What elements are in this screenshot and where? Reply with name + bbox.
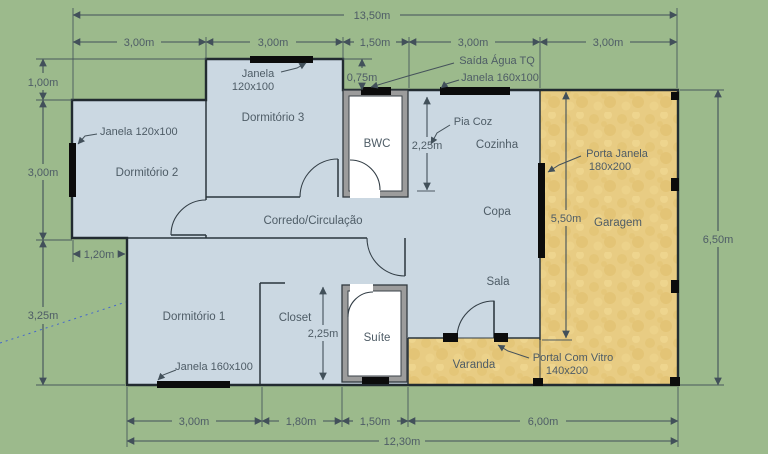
dim-top-5: 3,00m: [593, 37, 624, 49]
label-janela-dorm3-line1: Janela: [242, 68, 275, 80]
dim-left-mid: 3,00m: [28, 167, 59, 179]
portal-frame-right: [494, 333, 508, 342]
label-portal-line1: Portal Com Vitro: [533, 352, 614, 364]
dim-top-4: 3,00m: [458, 37, 489, 49]
label-janela-cozinha: Janela 160x100: [461, 72, 539, 84]
dim-left-top: 1,00m: [28, 77, 59, 89]
label-janela-dorm1: Janela 160x100: [175, 361, 253, 373]
dorm3-window: [250, 56, 313, 63]
room-dormitorio2: Dormitório 2: [116, 167, 179, 179]
dim-bottom-4: 6,00m: [528, 416, 559, 428]
room-bwc: BWC: [364, 138, 391, 150]
dim-bottom-2: 1,80m: [286, 416, 317, 428]
room-corredor: Corredo/Circulação: [263, 215, 362, 227]
floor-plan-canvas: 13,50m 3,00m 3,00m 1,50m 3,00m 3,00m 1,0…: [0, 0, 768, 454]
room-garagem: Garagem: [594, 217, 642, 229]
porta-janela: [538, 163, 545, 258]
dim-top-1: 3,00m: [124, 37, 155, 49]
label-saida-agua: Saída Água TQ: [459, 54, 535, 67]
dim-garagem-depth: 5,50m: [551, 213, 582, 225]
dim-closet-depth: 2,25m: [308, 328, 339, 340]
label-janela-dorm2: Janela 120x100: [100, 126, 178, 138]
dim-top-3: 1,50m: [360, 37, 391, 49]
dim-left-bot: 3,25m: [28, 310, 59, 322]
dorm2-window: [69, 143, 76, 197]
dim-bwc-offset: 0,75m: [347, 72, 378, 84]
dim-total-width: 13,50m: [354, 10, 391, 22]
room-sala: Sala: [486, 276, 510, 288]
label-janela-dorm3-line2: 120x100: [232, 81, 274, 93]
room-copa: Copa: [483, 206, 511, 218]
room-closet: Closet: [279, 312, 312, 324]
label-pia-coz: Pia Coz: [454, 116, 493, 128]
dim-step: 1,20m: [84, 249, 115, 261]
label-porta-janela-line1: Porta Janela: [586, 148, 649, 160]
dorm1-window: [157, 381, 230, 388]
garage-floor: [540, 90, 678, 385]
suite-window: [362, 377, 389, 384]
bwc-window: [361, 87, 391, 95]
portal-frame-left: [443, 333, 458, 342]
dim-cozinha-depth: 2,25m: [412, 140, 443, 152]
dim-bottom-1: 3,00m: [179, 416, 210, 428]
room-dormitorio3: Dormitório 3: [242, 112, 305, 124]
label-portal-line2: 140x200: [546, 365, 588, 377]
room-dormitorio1: Dormitório 1: [163, 311, 226, 323]
dim-bottom-total: 12,30m: [384, 436, 421, 448]
room-varanda: Varanda: [453, 359, 496, 371]
dim-total-height: 6,50m: [703, 234, 734, 246]
label-porta-janela-line2: 180x200: [589, 161, 631, 173]
dim-bottom-3: 1,50m: [360, 416, 391, 428]
room-cozinha: Cozinha: [476, 139, 519, 151]
cozinha-window: [440, 87, 510, 95]
floor-plan-drawing: 13,50m 3,00m 3,00m 1,50m 3,00m 3,00m 1,0…: [0, 0, 768, 454]
room-suite: Suíte: [364, 332, 391, 344]
dim-top-2: 3,00m: [258, 37, 289, 49]
